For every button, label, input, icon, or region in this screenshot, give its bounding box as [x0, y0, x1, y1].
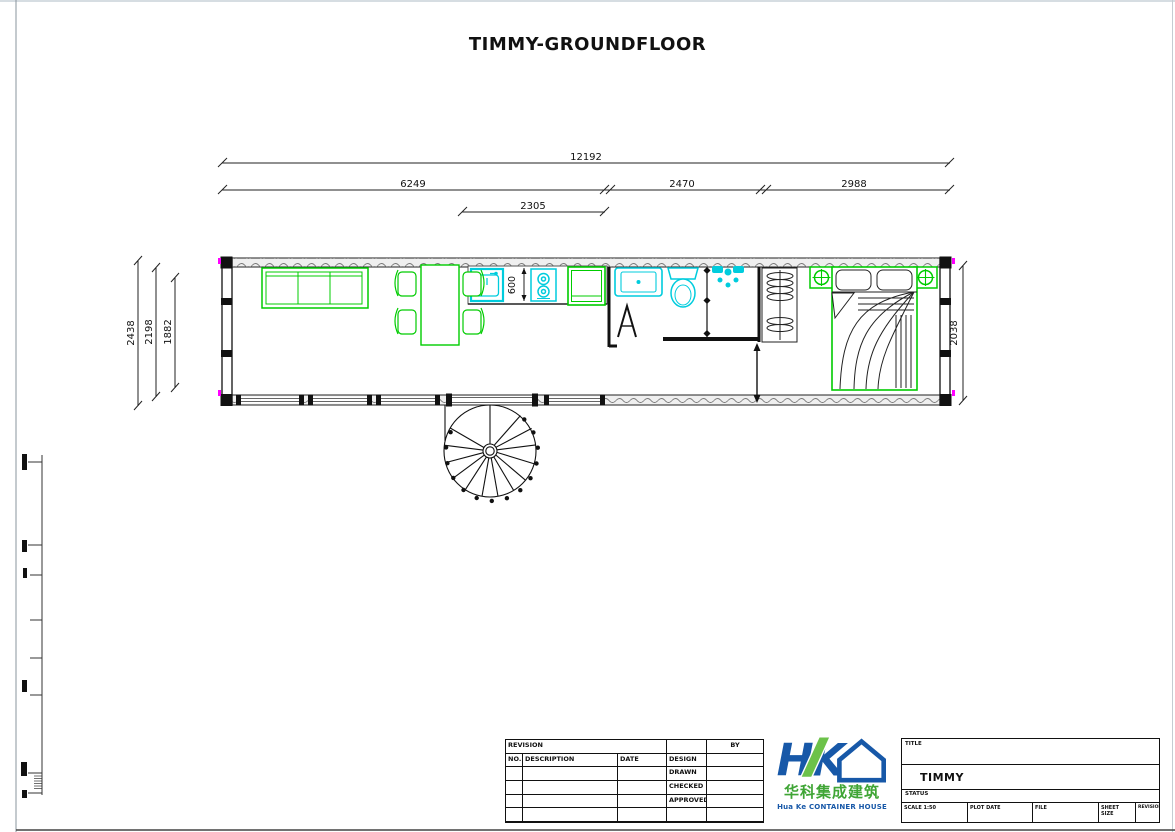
revision-cell [523, 795, 618, 809]
revision-row-design: DESIGN [667, 754, 707, 768]
double-bed [832, 267, 917, 390]
revision-col-no: NO. [506, 754, 523, 768]
project-name: TIMMY [902, 765, 1159, 790]
sofa [262, 268, 368, 308]
wardrobe [762, 268, 797, 342]
revision-table: REVISION BY NO. DESCRIPTION DATE DESIGN … [505, 739, 764, 823]
company-logo-block: HK 华科集成建筑 Hua Ke CONTAINER HOUSE [766, 735, 898, 823]
dim-bedroom-length: 2988 [841, 179, 866, 190]
revision-cell [707, 754, 763, 768]
stair-doorway [452, 396, 532, 404]
revision-cell [506, 808, 523, 822]
left-margin-ruler [21, 454, 42, 798]
revision-cell [523, 767, 618, 781]
logo-house-icon [839, 741, 883, 780]
dim-living-length: 6249 [400, 179, 425, 190]
dim-overall-width: 2438 [126, 320, 137, 345]
field-revision: REVISION [1136, 803, 1159, 822]
field-file: FILE [1033, 803, 1099, 822]
revision-cell [523, 781, 618, 795]
revision-cell [707, 781, 763, 795]
dim-counter-depth: 600 [507, 276, 518, 294]
ladder [618, 306, 636, 337]
vanity-sink [615, 268, 662, 296]
shower-head [712, 266, 744, 288]
bathroom [615, 266, 744, 337]
revision-cell [506, 781, 523, 795]
company-name-english: Hua Ke CONTAINER HOUSE [777, 803, 887, 811]
floor-plan-drawing: 12192 6249 2470 2988 2305 2438 2198 1882… [0, 0, 1175, 832]
revision-cell [707, 767, 763, 781]
fridge [568, 267, 605, 305]
revision-col-by: BY [707, 740, 763, 754]
revision-cell [618, 808, 667, 822]
revision-cell [707, 795, 763, 809]
field-plot-date: PLOT DATE [968, 803, 1033, 822]
revision-table-title: REVISION [506, 740, 667, 754]
title-label: TITLE [902, 739, 1159, 765]
revision-cell [618, 767, 667, 781]
revision-role-header [667, 740, 707, 754]
dining-table [395, 265, 484, 345]
revision-cell [618, 795, 667, 809]
hk-logo-icon: HK [776, 735, 888, 783]
toilet [668, 268, 698, 307]
title-block: TITLE TIMMY STATUS SCALE 1:50 PLOT DATE … [901, 738, 1160, 823]
revision-row-approved: APPROVED [667, 795, 707, 809]
living-dining [262, 265, 484, 345]
revision-cell [523, 808, 618, 822]
dim-inner-width: 2198 [144, 319, 155, 344]
dimension-lines-top: 12192 6249 2470 2988 2305 [218, 150, 954, 216]
revision-cell [707, 808, 763, 822]
status-label: STATUS [902, 790, 1159, 803]
sheet-title: TIMMY-GROUNDFLOOR [0, 34, 1175, 55]
revision-cell [667, 808, 707, 822]
revision-cell [506, 767, 523, 781]
revision-cell [506, 795, 523, 809]
page-frame [0, 0, 1175, 832]
dim-bath-length: 2470 [669, 179, 694, 190]
revision-cell [618, 781, 667, 795]
field-sheet-size: SHEET SIZE [1099, 803, 1136, 822]
revision-row-drawn: DRAWN [667, 767, 707, 781]
dim-kitchen-length: 2305 [520, 201, 545, 212]
dim-room-width: 1882 [163, 319, 174, 344]
bedroom [762, 267, 937, 390]
revision-col-description: DESCRIPTION [523, 754, 618, 768]
revision-col-date: DATE [618, 754, 667, 768]
spiral-staircase [444, 405, 540, 503]
company-name-chinese: 华科集成建筑 [784, 784, 880, 801]
field-scale: SCALE 1:50 [902, 803, 968, 822]
revision-row-checked: CHECKED [667, 781, 707, 795]
kitchen: 600 [468, 266, 607, 305]
dim-overall-length: 12192 [570, 152, 602, 163]
stove [531, 269, 556, 301]
